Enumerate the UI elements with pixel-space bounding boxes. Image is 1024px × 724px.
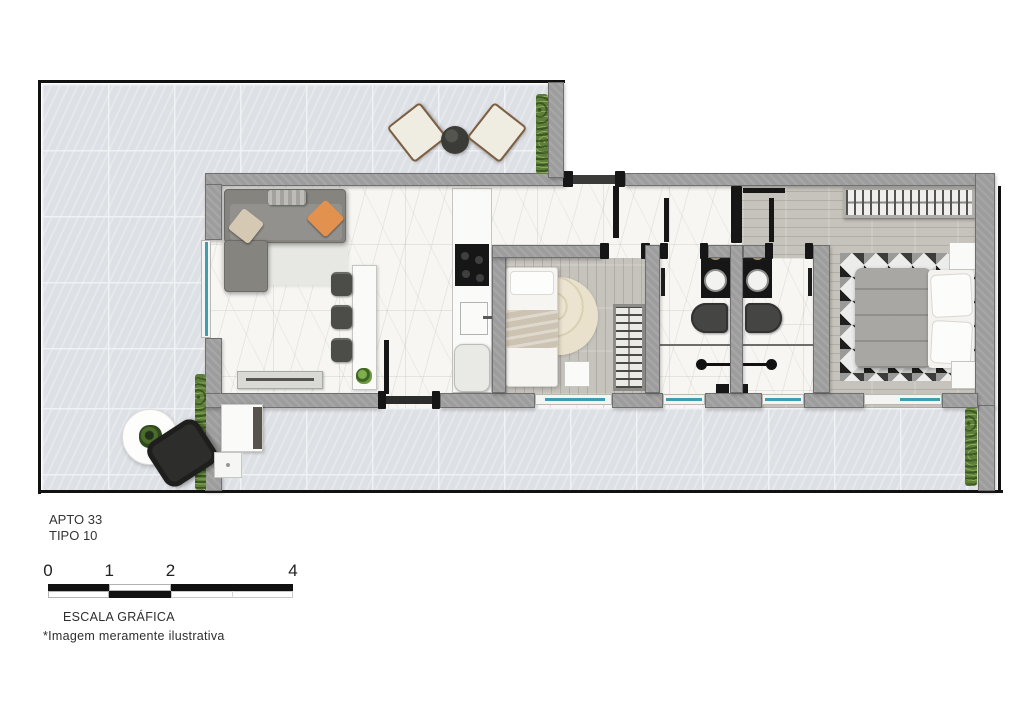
scale-tick-4: 4	[288, 561, 297, 581]
sofa-chaise	[224, 240, 268, 292]
wall-bathroom2-master	[813, 245, 830, 393]
floor-plan-sheet: APTO 33 TIPO 10 0 1 2 4 ESCALA GRÁFICA *…	[0, 0, 1024, 724]
bathroom1-sink	[704, 269, 727, 292]
wall-south-master	[942, 393, 978, 408]
wall-top-east	[625, 173, 978, 186]
scale-bar-segment	[171, 584, 294, 591]
cooktop	[455, 244, 489, 286]
scale-tick-1: 1	[105, 561, 114, 581]
bathroom1-door-jamb	[660, 243, 668, 259]
entry-door-jamb	[563, 171, 573, 187]
bathroom1-shower-divider	[660, 344, 730, 346]
scale-bar-segment	[109, 591, 170, 598]
master-door-stub	[731, 186, 742, 243]
bathroom2-shower-divider	[743, 344, 813, 346]
scale-bar-segment	[109, 584, 170, 591]
bathroom2-door-jamb	[765, 243, 773, 259]
wall-east	[975, 173, 995, 408]
bathroom1-toilet	[691, 303, 728, 333]
scale-tick-2: 2	[166, 561, 175, 581]
kitchen-faucet-icon	[483, 316, 492, 319]
wall-terrace-right	[978, 405, 995, 491]
scale-caption: ESCALA GRÁFICA	[63, 610, 175, 624]
outdoor-table	[441, 126, 469, 154]
wall-bathrooms-divider	[730, 245, 743, 393]
terrace-door-jamb	[432, 391, 440, 409]
master-window	[900, 398, 940, 401]
master-pillow	[930, 273, 973, 318]
scale-bar-midtick	[232, 591, 233, 598]
wall-bathroom2-north	[743, 245, 767, 258]
master-door-leaf	[743, 188, 785, 193]
wall-south-pier	[612, 393, 663, 408]
wall-terrace-right-column	[548, 82, 564, 178]
lot-boundary-bottom	[38, 490, 1003, 493]
scale-bar-segment	[48, 591, 109, 598]
bathroom2-toilet	[745, 303, 782, 333]
throw-blanket	[268, 190, 306, 205]
entry-door-threshold	[573, 175, 617, 184]
bedroom1-window	[545, 398, 605, 401]
bathroom1-towel-bar	[661, 268, 665, 296]
wall-bedroom1-north	[492, 245, 602, 258]
sideboard-handle	[246, 378, 314, 381]
master-nightstand	[949, 242, 976, 270]
wall-top-west	[205, 173, 565, 186]
bedroom1-pillow	[510, 271, 554, 295]
bathroom2-shower-arm	[743, 363, 768, 366]
washing-machine-panel	[253, 407, 262, 449]
bathroom1-shower-arm	[705, 363, 730, 366]
bedroom1-door-jamb	[600, 243, 609, 259]
island-plant	[356, 368, 372, 384]
refrigerator	[454, 344, 490, 392]
hedge	[536, 94, 548, 174]
bar-stool	[331, 305, 352, 329]
footnote: *Imagem meramente ilustrativa	[43, 629, 225, 643]
bar-stool	[331, 272, 352, 296]
shower-fitting	[716, 384, 729, 393]
bathroom1-window	[666, 398, 702, 401]
terrace-door-leaf	[384, 340, 389, 394]
wall-south-pier	[804, 393, 864, 408]
master-wardrobe	[843, 187, 975, 218]
master-nightstand	[951, 361, 978, 389]
bathroom2-door-jamb	[805, 243, 813, 259]
wall-south-kitchen	[440, 393, 535, 408]
bathroom2-door-leaf	[769, 198, 774, 242]
entry-door-leaf	[613, 186, 619, 238]
bedroom1-blanket	[506, 310, 558, 348]
cooktop-burners	[461, 252, 469, 260]
bathroom1-door-jamb	[700, 243, 708, 259]
apartment-label: APTO 33	[49, 512, 102, 528]
bathroom2-sink	[746, 269, 769, 292]
scale-bar-segment	[48, 584, 109, 591]
wall-west-upper	[205, 184, 222, 240]
scale-bar: 0 1 2 4	[48, 561, 293, 599]
hedge	[965, 408, 977, 486]
bathroom2-towel-bar	[808, 268, 812, 296]
wall-south-pier	[705, 393, 762, 408]
master-pillow	[930, 320, 973, 365]
legend: APTO 33 TIPO 10 0 1 2 4 ESCALA GRÁFICA *…	[48, 512, 368, 652]
living-glass-door	[205, 242, 208, 336]
wall-bedroom1-bathroom1	[645, 245, 660, 393]
bar-stool	[331, 338, 352, 362]
bedroom1-side-table	[564, 361, 590, 387]
type-label: TIPO 10	[49, 528, 97, 544]
entry-door-jamb	[615, 171, 625, 187]
lot-boundary-top	[38, 80, 565, 83]
terrace-door-threshold	[386, 396, 432, 404]
wall-kitchen-bedroom1	[492, 245, 506, 393]
bathroom1-door-leaf	[664, 198, 669, 242]
scale-tick-0: 0	[43, 561, 52, 581]
bedroom1-wardrobe	[613, 304, 645, 391]
lot-boundary-left	[38, 80, 41, 494]
master-bed-duvet	[855, 268, 931, 368]
lot-boundary-right	[998, 186, 1001, 493]
bathroom2-window	[765, 398, 801, 401]
laundry-sink-drain	[226, 463, 230, 467]
